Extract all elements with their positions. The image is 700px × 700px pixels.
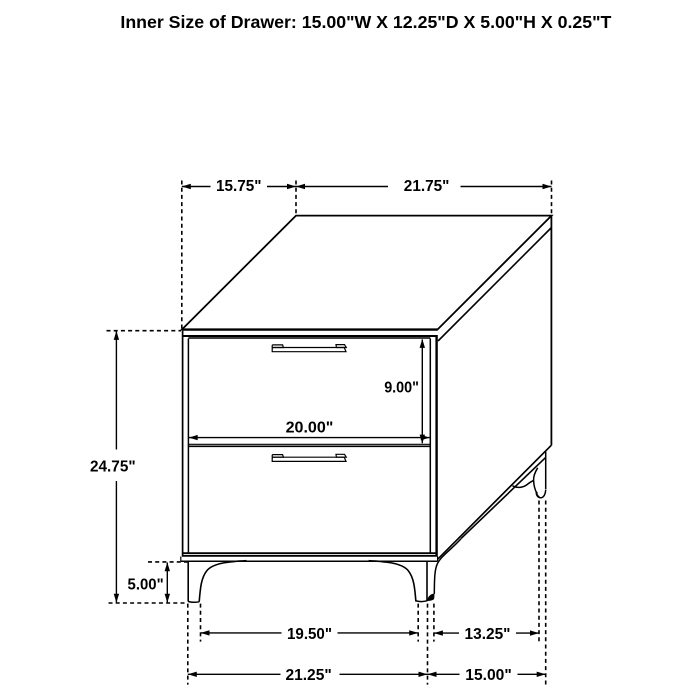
svg-text:9.00": 9.00": [384, 380, 419, 397]
svg-text:15.75": 15.75": [216, 178, 262, 195]
svg-text:15.00": 15.00": [465, 667, 512, 684]
svg-text:19.50": 19.50": [287, 626, 332, 643]
svg-text:21.75": 21.75": [404, 178, 450, 195]
svg-text:21.25": 21.25": [285, 667, 331, 684]
svg-text:Inner Size of Drawer: 15.00"W: Inner Size of Drawer: 15.00"W X 12.25"D …: [120, 12, 611, 32]
svg-text:13.25": 13.25": [465, 626, 511, 643]
svg-text:5.00": 5.00": [128, 576, 164, 593]
svg-text:24.75": 24.75": [90, 459, 136, 476]
svg-text:20.00": 20.00": [286, 420, 334, 437]
